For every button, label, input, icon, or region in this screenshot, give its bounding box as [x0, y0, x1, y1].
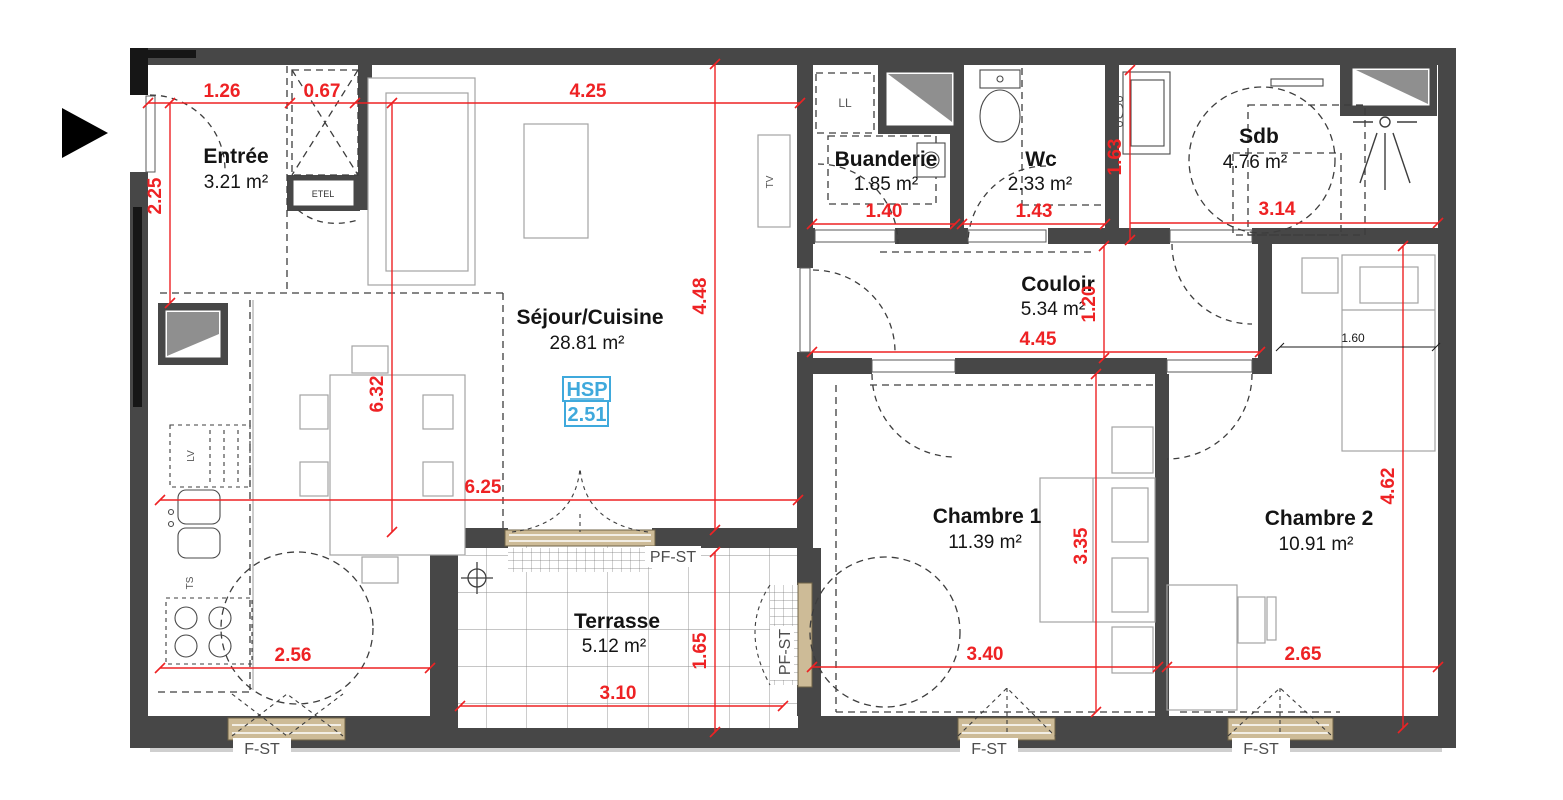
room-area-wc: 2.33 m²: [1008, 174, 1072, 195]
hsp-label: HSP: [566, 379, 607, 401]
duct-buanderie: [878, 64, 962, 134]
fst-tag-chambre2: F-ST: [1243, 741, 1279, 758]
room-area-terrasse: 5.12 m²: [582, 636, 646, 657]
coffee-table: [524, 124, 588, 238]
cooktop-icon: [166, 598, 252, 664]
room-name-buanderie: Buanderie: [835, 148, 938, 171]
room-area-couloir: 5.34 m²: [1021, 299, 1085, 320]
shelf-icon: [1271, 79, 1323, 86]
room-area-sejour: 28.81 m²: [550, 333, 625, 354]
turning-circle-kitchen: [221, 552, 373, 704]
fst-tag-sejour: F-ST: [244, 741, 280, 758]
dim-0-67: 0.67: [304, 81, 341, 102]
dim-3-14: 3.14: [1259, 199, 1296, 220]
pfst-tag-terrace-side: PF-ST: [777, 629, 794, 675]
dim-1-65: 1.65: [690, 632, 711, 669]
dim-1-43: 1.43: [1016, 201, 1053, 222]
fst-tag-chambre1: F-ST: [971, 741, 1007, 758]
room-area-entree: 3.21 m²: [204, 172, 268, 193]
dim-3-40: 3.40: [967, 644, 1004, 665]
dim-4-48: 4.48: [690, 278, 711, 315]
bed-chambre2: [1302, 255, 1435, 451]
dim-3-35: 3.35: [1071, 527, 1092, 564]
floor-plan: ETEL TV LV TS: [0, 0, 1563, 800]
floor-plan-canvas: ETEL TV LV TS: [0, 0, 1563, 800]
dim-1-60: 1.60: [1341, 331, 1365, 345]
dim-4-62: 4.62: [1378, 468, 1399, 505]
room-area-chambre2: 10.91 m²: [1279, 534, 1354, 555]
dim-3-10: 3.10: [600, 683, 637, 704]
entrance-door-leaf: [146, 96, 155, 172]
dishwasher: LV: [170, 425, 250, 487]
sofa: [368, 78, 475, 285]
dim-1-20: 1.20: [1079, 286, 1100, 323]
dim-2-65: 2.65: [1285, 644, 1322, 665]
dim-4-25: 4.25: [570, 81, 607, 102]
dim-2-25: 2.25: [145, 177, 166, 214]
etel-label: ETEL: [312, 189, 335, 199]
ts-label: TS: [185, 576, 196, 589]
bed-chambre1: [1040, 427, 1155, 673]
window-chambre2: [1228, 688, 1333, 740]
dim-6-32: 6.32: [367, 376, 388, 413]
window-terrace-top: [505, 468, 655, 572]
dim-1-26: 1.26: [204, 81, 241, 102]
hsp-value: 2.51: [568, 404, 607, 426]
room-name-chambre1: Chambre 1: [933, 505, 1042, 528]
duct-kitchen: [158, 303, 228, 365]
window-chambre1: [958, 688, 1055, 740]
ll-label: LL: [838, 96, 852, 110]
dim-1-63: 1.63: [1105, 139, 1126, 176]
pfst-tag-terrace-top: PF-ST: [650, 549, 696, 566]
room-name-entree: Entrée: [203, 145, 268, 168]
tv-unit: TV: [758, 135, 790, 227]
hsp-box: HSP 2.51: [563, 377, 610, 426]
room-name-wc: Wc: [1025, 148, 1057, 171]
entrance-arrow-icon: [62, 108, 108, 158]
room-name-chambre2: Chambre 2: [1265, 507, 1374, 530]
dim-6-25: 6.25: [465, 477, 502, 498]
tv-label: TV: [765, 175, 776, 188]
room-name-sdb: Sdb: [1239, 125, 1279, 148]
shower-icon: [1353, 117, 1417, 190]
room-area-buanderie: 1.85 m²: [854, 174, 918, 195]
dim-1-40: 1.40: [866, 201, 903, 222]
room-area-sdb: 4.76 m²: [1223, 152, 1287, 173]
room-name-terrasse: Terrasse: [574, 610, 660, 633]
desk-chambre2: [1167, 585, 1276, 710]
room-name-sejour: Séjour/Cuisine: [516, 306, 663, 329]
lv-label: LV: [186, 450, 197, 462]
dim-2-56: 2.56: [275, 645, 312, 666]
dim-4-45: 4.45: [1020, 329, 1057, 350]
room-area-chambre1: 11.39 m²: [948, 532, 1022, 553]
turning-circle-chambre1: [810, 557, 960, 707]
toilet-icon: [980, 70, 1020, 142]
